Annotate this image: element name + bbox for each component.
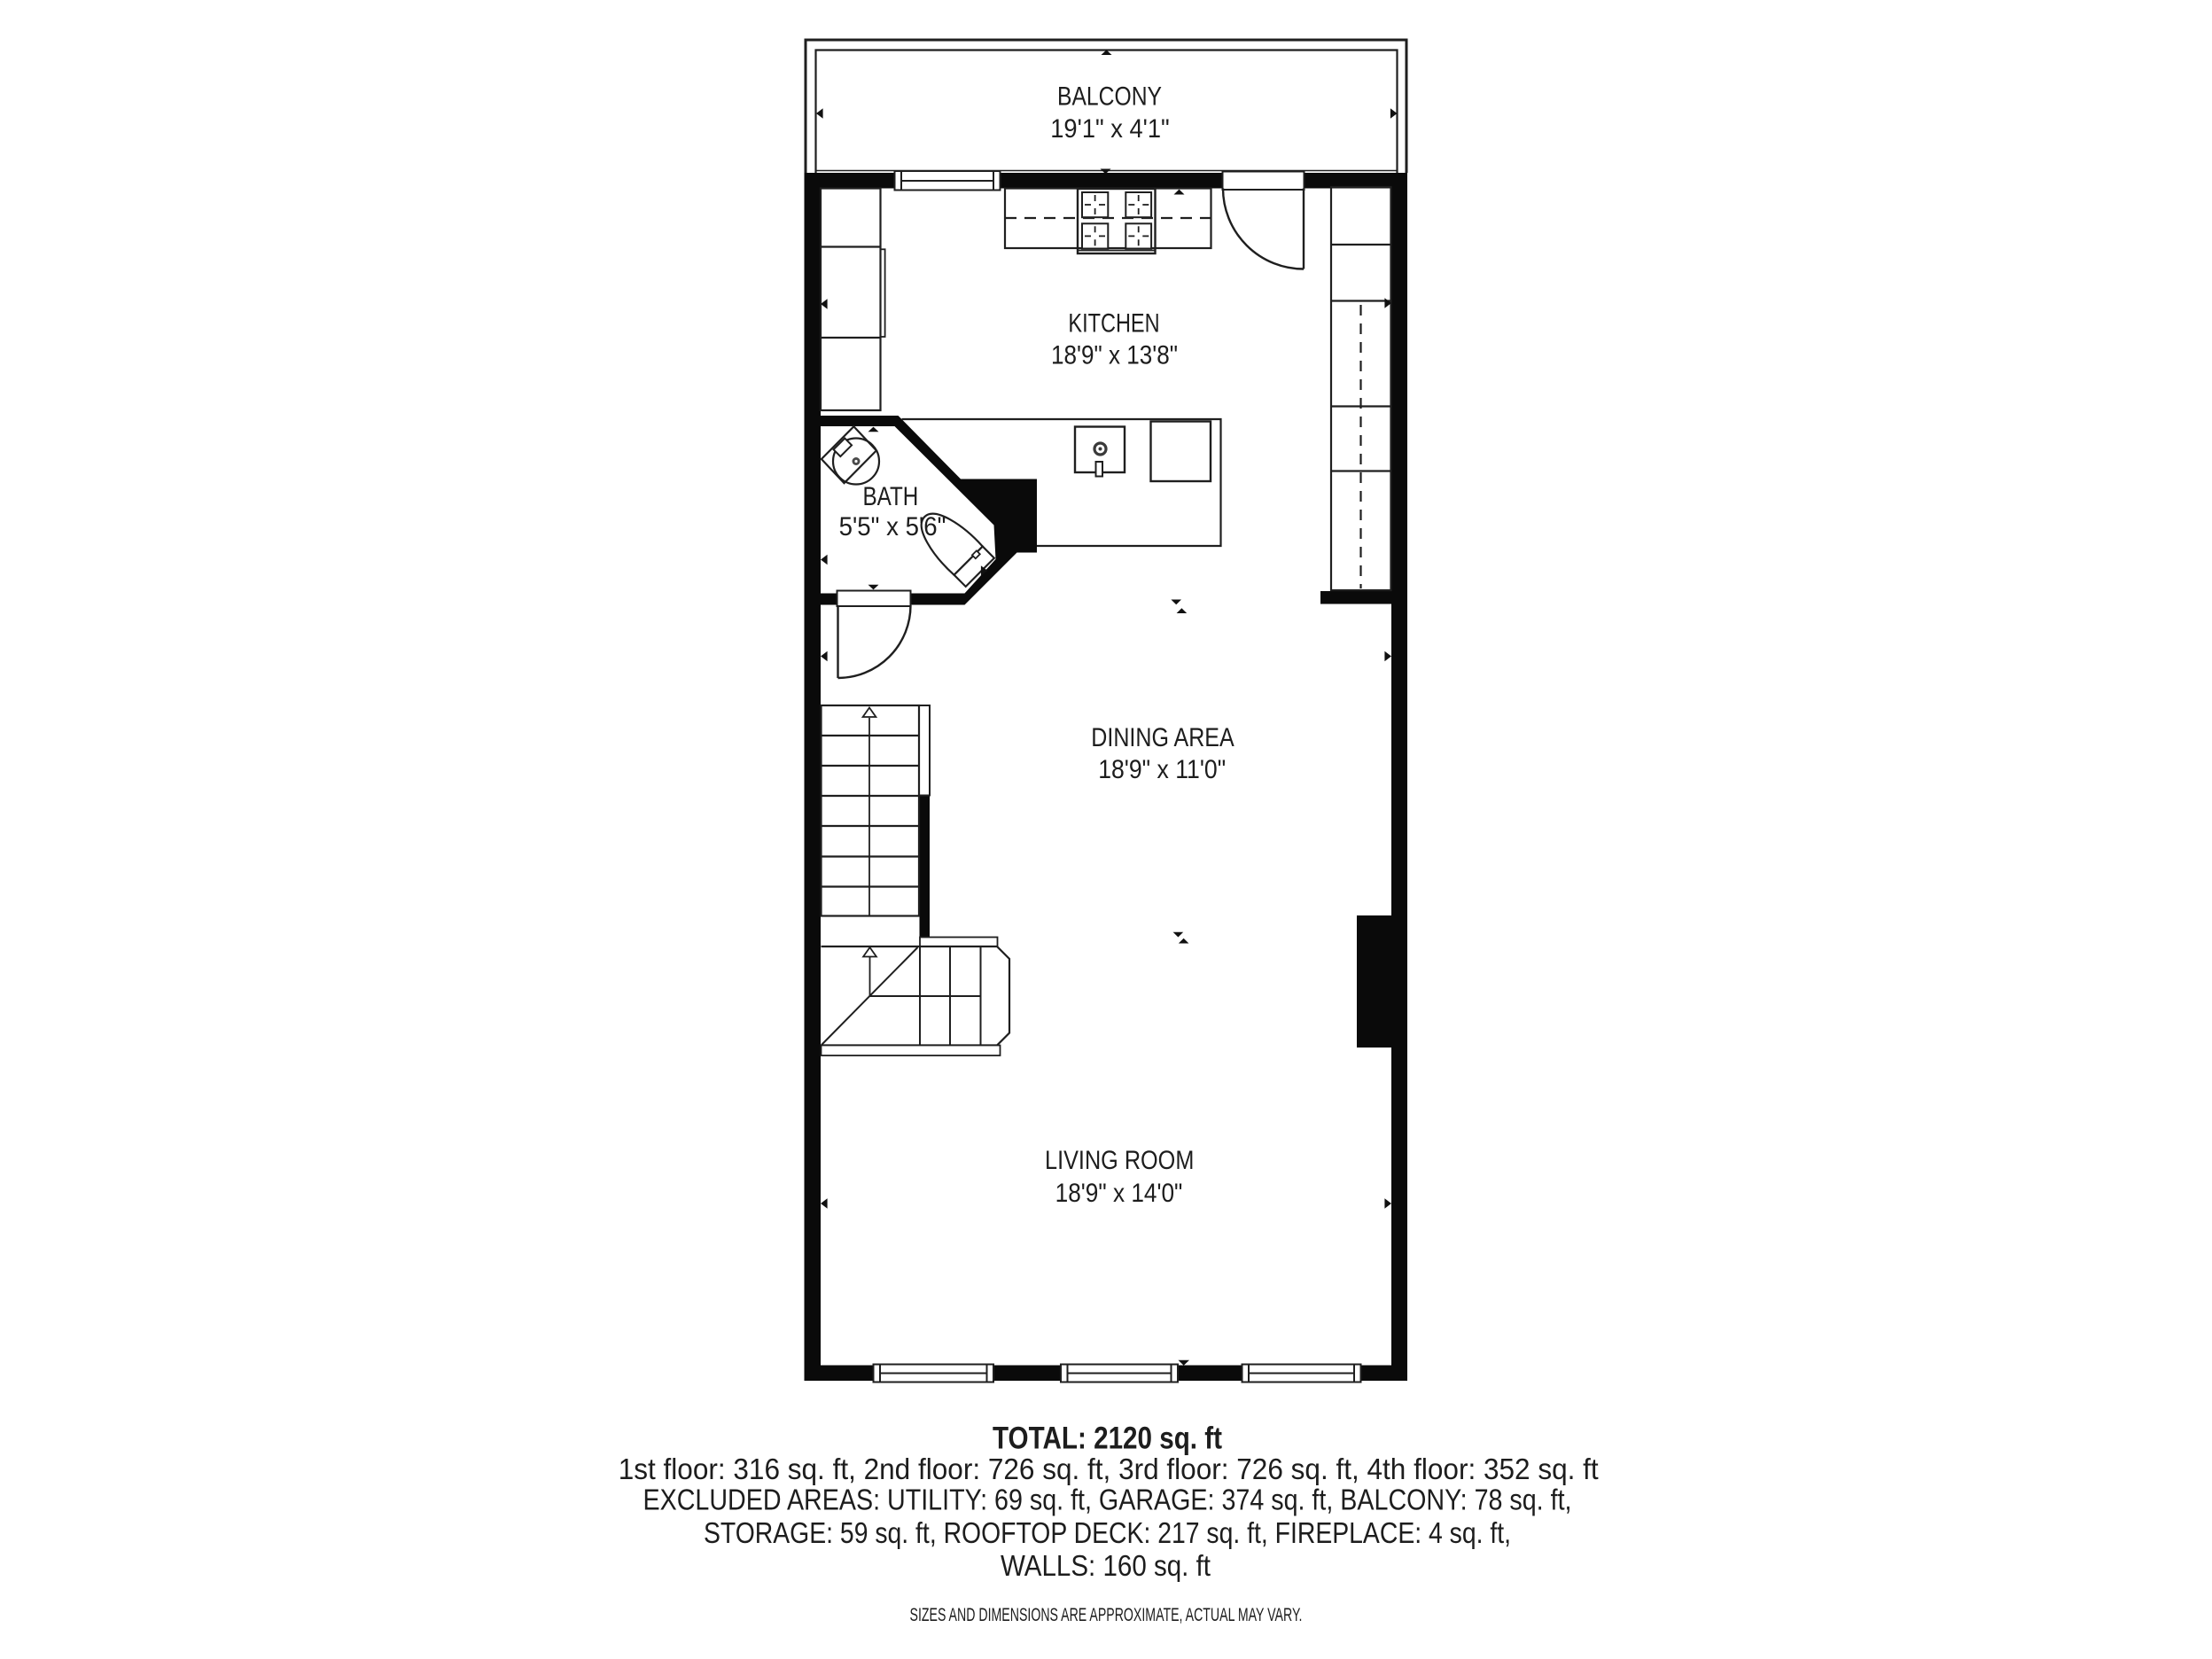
svg-text:18'9" x 14'0": 18'9" x 14'0" [1055,1179,1183,1208]
svg-text:18'9" x 13'8": 18'9" x 13'8" [1051,341,1178,370]
svg-text:KITCHEN: KITCHEN [1068,309,1159,339]
svg-text:1st floor: 316 sq. ft, 2nd flo: 1st floor: 316 sq. ft, 2nd floor: 726 sq… [619,1453,1600,1486]
svg-text:EXCLUDED AREAS: UTILITY: 69 sq: EXCLUDED AREAS: UTILITY: 69 sq. ft, GARA… [643,1484,1572,1517]
svg-text:5'5" x 5'6": 5'5" x 5'6" [839,512,946,541]
svg-text:BATH: BATH [862,482,918,511]
svg-text:TOTAL: 2120 sq. ft: TOTAL: 2120 sq. ft [993,1421,1222,1456]
svg-text:SIZES AND DIMENSIONS ARE APPRO: SIZES AND DIMENSIONS ARE APPROXIMATE, AC… [910,1605,1303,1625]
svg-text:STORAGE: 59 sq. ft, ROOFTOP DE: STORAGE: 59 sq. ft, ROOFTOP DECK: 217 sq… [704,1517,1511,1550]
svg-text:DINING AREA: DINING AREA [1091,723,1234,752]
svg-text:BALCONY: BALCONY [1057,82,1162,112]
svg-text:LIVING ROOM: LIVING ROOM [1045,1146,1194,1175]
svg-text:WALLS: 160 sq. ft: WALLS: 160 sq. ft [1001,1550,1211,1583]
svg-text:19'1" x 4'1": 19'1" x 4'1" [1050,114,1170,144]
svg-text:18'9" x 11'0": 18'9" x 11'0" [1098,755,1226,784]
